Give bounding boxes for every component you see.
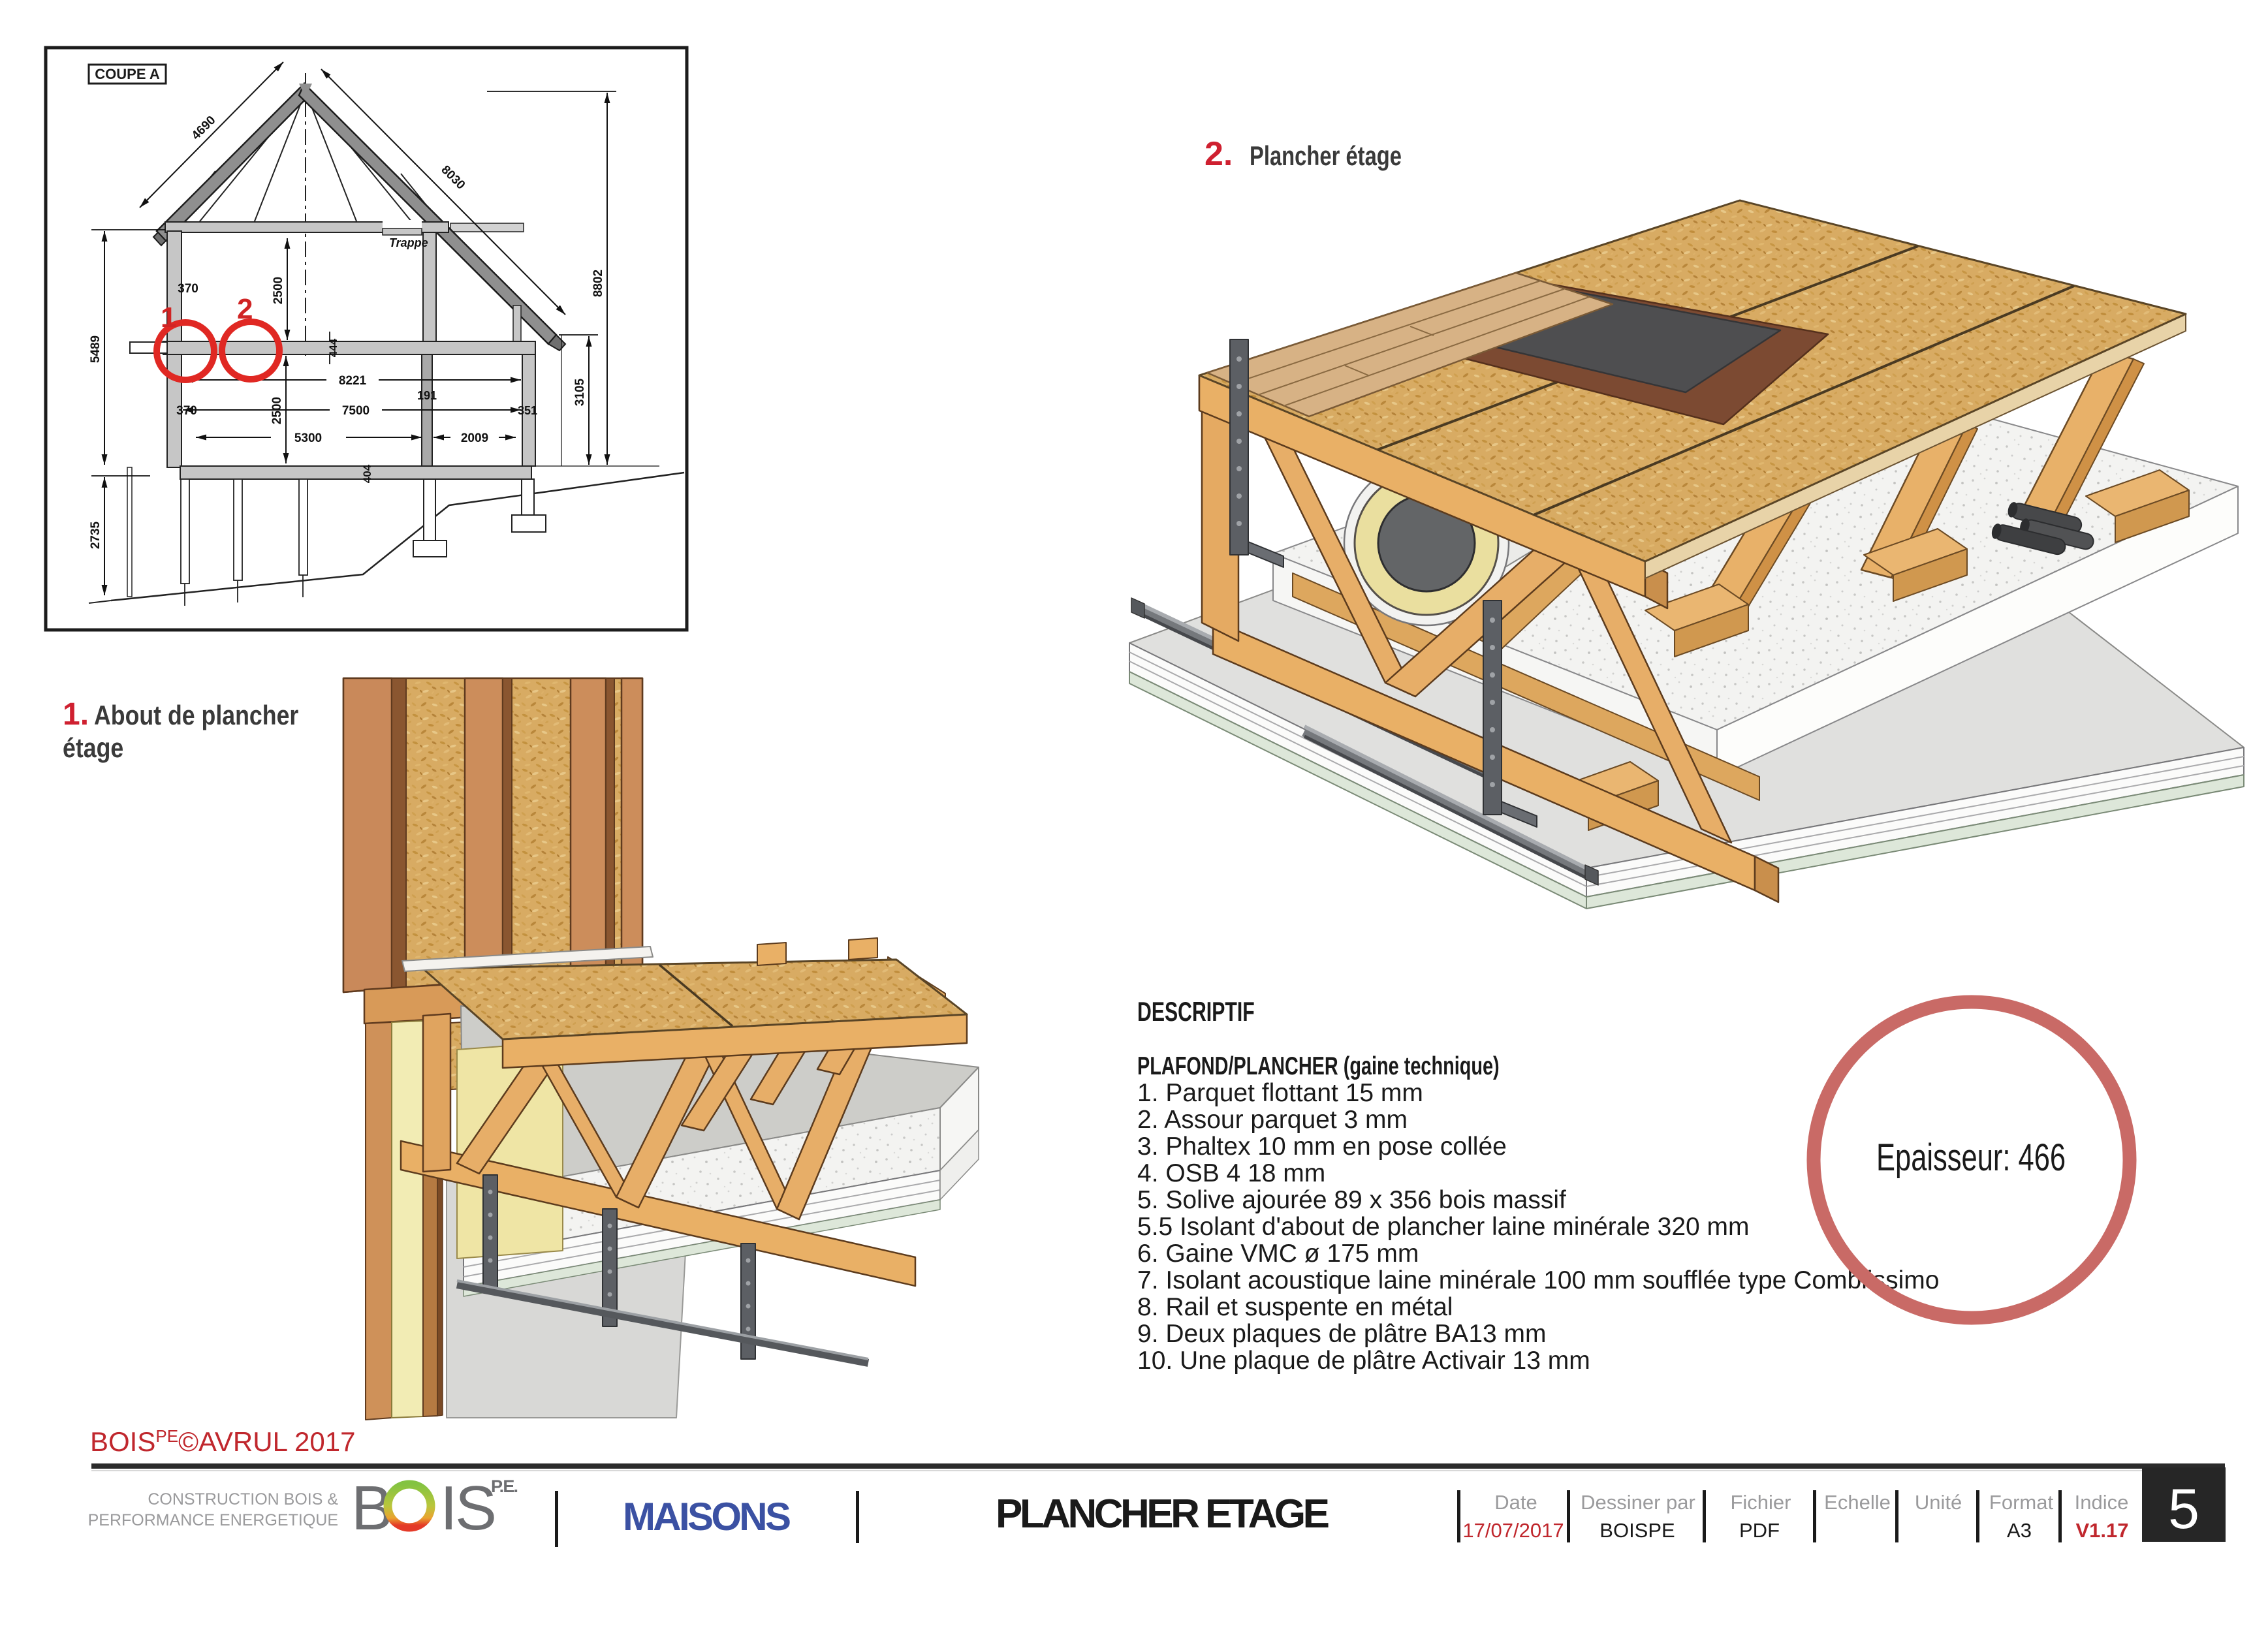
svg-text:5489: 5489 <box>89 336 102 363</box>
svg-text:Format: Format <box>1989 1491 2054 1514</box>
svg-text:1: 1 <box>161 302 176 334</box>
svg-text:9. Deux plaques de plâtre BA13: 9. Deux plaques de plâtre BA13 mm <box>1137 1320 1547 1348</box>
svg-text:8. Rail et suspente en métal: 8. Rail et suspente en métal <box>1137 1293 1453 1321</box>
svg-text:BOISPE: BOISPE <box>1599 1519 1675 1542</box>
svg-text:Trappe: Trappe <box>389 236 428 249</box>
svg-text:3105: 3105 <box>573 378 587 406</box>
svg-text:V1.17: V1.17 <box>2075 1519 2128 1542</box>
svg-text:PDF: PDF <box>1739 1519 1780 1542</box>
svg-text:Plancher étage: Plancher étage <box>1250 140 1402 171</box>
svg-text:A3: A3 <box>2007 1519 2032 1542</box>
svg-text:PERFORMANCE ENERGETIQUE: PERFORMANCE ENERGETIQUE <box>88 1511 338 1529</box>
svg-text:17/07/2017: 17/07/2017 <box>1462 1519 1564 1542</box>
svg-text:1.: 1. <box>63 697 89 732</box>
svg-text:351: 351 <box>518 404 537 417</box>
svg-text:PLANCHER ETAGE: PLANCHER ETAGE <box>996 1492 1330 1537</box>
svg-text:2.: 2. <box>1205 135 1233 173</box>
svg-text:2009: 2009 <box>461 431 488 445</box>
svg-text:Fichier: Fichier <box>1730 1491 1791 1514</box>
svg-text:444: 444 <box>327 338 339 357</box>
svg-text:PLAFOND/PLANCHER (gaine techni: PLAFOND/PLANCHER (gaine technique) <box>1137 1052 1500 1080</box>
svg-text:8221: 8221 <box>339 374 367 388</box>
svg-text:2500: 2500 <box>272 277 285 304</box>
svg-text:BOISPE©AVRUL 2017: BOISPE©AVRUL 2017 <box>90 1426 355 1457</box>
svg-text:Dessiner par: Dessiner par <box>1581 1491 1695 1514</box>
svg-text:5.5 Isolant d'about de planche: 5.5 Isolant d'about de plancher laine mi… <box>1137 1213 1750 1241</box>
svg-text:8802: 8802 <box>591 270 605 297</box>
svg-text:404: 404 <box>361 464 373 483</box>
svg-text:5: 5 <box>2168 1478 2199 1540</box>
svg-text:2: 2 <box>237 293 253 325</box>
svg-text:191: 191 <box>417 389 437 402</box>
svg-text:CONSTRUCTION BOIS &: CONSTRUCTION BOIS & <box>148 1490 338 1509</box>
svg-text:6. Gaine VMC ø 175 mm: 6. Gaine VMC ø 175 mm <box>1137 1240 1419 1268</box>
svg-text:DESCRIPTIF: DESCRIPTIF <box>1137 996 1255 1027</box>
svg-text:7. Isolant acoustique laine mi: 7. Isolant acoustique laine minérale 100… <box>1137 1266 1939 1294</box>
svg-text:Unité: Unité <box>1915 1491 1962 1514</box>
svg-text:MAISONS: MAISONS <box>623 1495 791 1539</box>
svg-text:étage: étage <box>63 733 123 763</box>
svg-text:4. OSB 4 18 mm: 4. OSB 4 18 mm <box>1137 1159 1325 1187</box>
svg-text:5300: 5300 <box>294 431 322 445</box>
svg-text:2735: 2735 <box>89 521 102 549</box>
svg-text:About de plancher: About de plancher <box>94 700 298 730</box>
svg-text:370: 370 <box>178 282 198 296</box>
svg-text:10. Une plaque de plâtre Activ: 10. Une plaque de plâtre Activair 13 mm <box>1137 1347 1590 1375</box>
svg-text:COUPE A: COUPE A <box>95 66 160 82</box>
svg-text:Epaisseur: 466: Epaisseur: 466 <box>1876 1136 2066 1178</box>
svg-text:2. Assour parquet 3 mm: 2. Assour parquet 3 mm <box>1137 1106 1408 1134</box>
svg-text:P.E.: P.E. <box>491 1477 518 1496</box>
svg-text:Echelle: Echelle <box>1824 1491 1891 1514</box>
svg-text:370: 370 <box>176 404 197 418</box>
svg-text:7500: 7500 <box>342 404 370 418</box>
svg-text:3. Phaltex 10 mm en pose collé: 3. Phaltex 10 mm en pose collée <box>1137 1133 1507 1161</box>
svg-text:Date: Date <box>1494 1491 1537 1514</box>
svg-text:5. Solive ajourée 89 x 356 boi: 5. Solive ajourée 89 x 356 bois massif <box>1137 1186 1566 1214</box>
svg-text:1. Parquet flottant 15 mm: 1. Parquet flottant 15 mm <box>1137 1079 1423 1107</box>
svg-text:Indice: Indice <box>2075 1491 2129 1514</box>
